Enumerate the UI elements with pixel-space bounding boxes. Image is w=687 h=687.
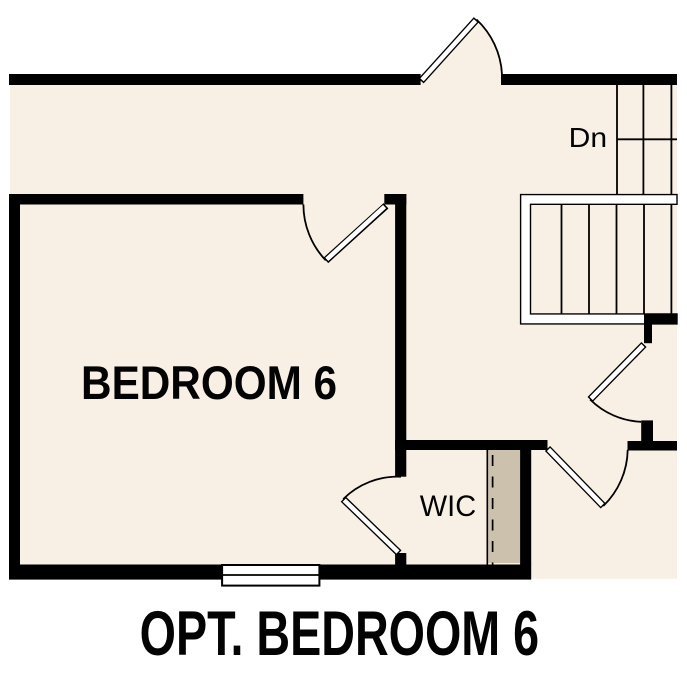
svg-text:OPT. BEDROOM 6: OPT. BEDROOM 6: [140, 599, 540, 669]
svg-text:Dn: Dn: [569, 122, 608, 153]
svg-text:WIC: WIC: [420, 490, 476, 523]
svg-text:BEDROOM 6: BEDROOM 6: [81, 357, 337, 410]
